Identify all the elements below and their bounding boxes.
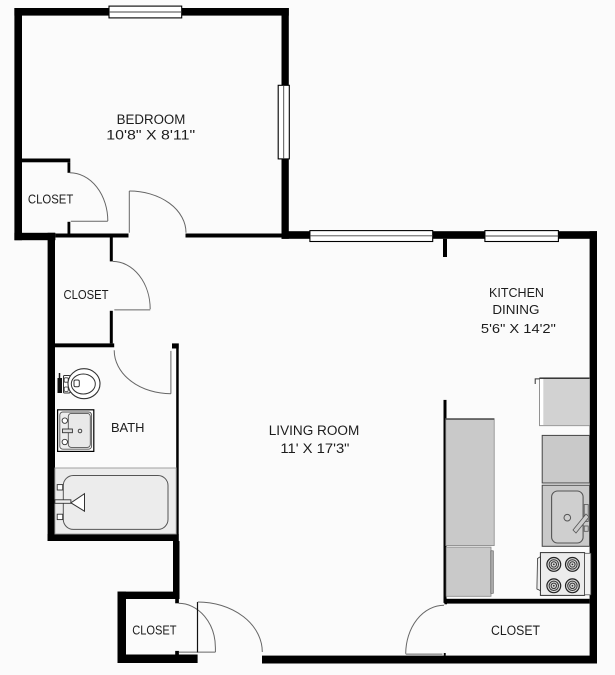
svg-text:11' X 17'3": 11' X 17'3"	[280, 441, 349, 456]
svg-text:BEDROOM: BEDROOM	[117, 112, 186, 127]
svg-text:LIVING ROOM: LIVING ROOM	[269, 423, 360, 438]
svg-text:BATH: BATH	[111, 420, 145, 435]
svg-text:CLOSET: CLOSET	[491, 623, 540, 638]
svg-text:5'6" X 14'2": 5'6" X 14'2"	[481, 321, 556, 336]
svg-text:KITCHEN: KITCHEN	[489, 285, 544, 300]
svg-text:CLOSET: CLOSET	[28, 191, 73, 206]
svg-text:CLOSET: CLOSET	[132, 623, 176, 638]
svg-text:DINING: DINING	[492, 302, 539, 317]
svg-text:10'8" X 8'11": 10'8" X 8'11"	[106, 128, 195, 143]
svg-text:CLOSET: CLOSET	[64, 287, 109, 302]
